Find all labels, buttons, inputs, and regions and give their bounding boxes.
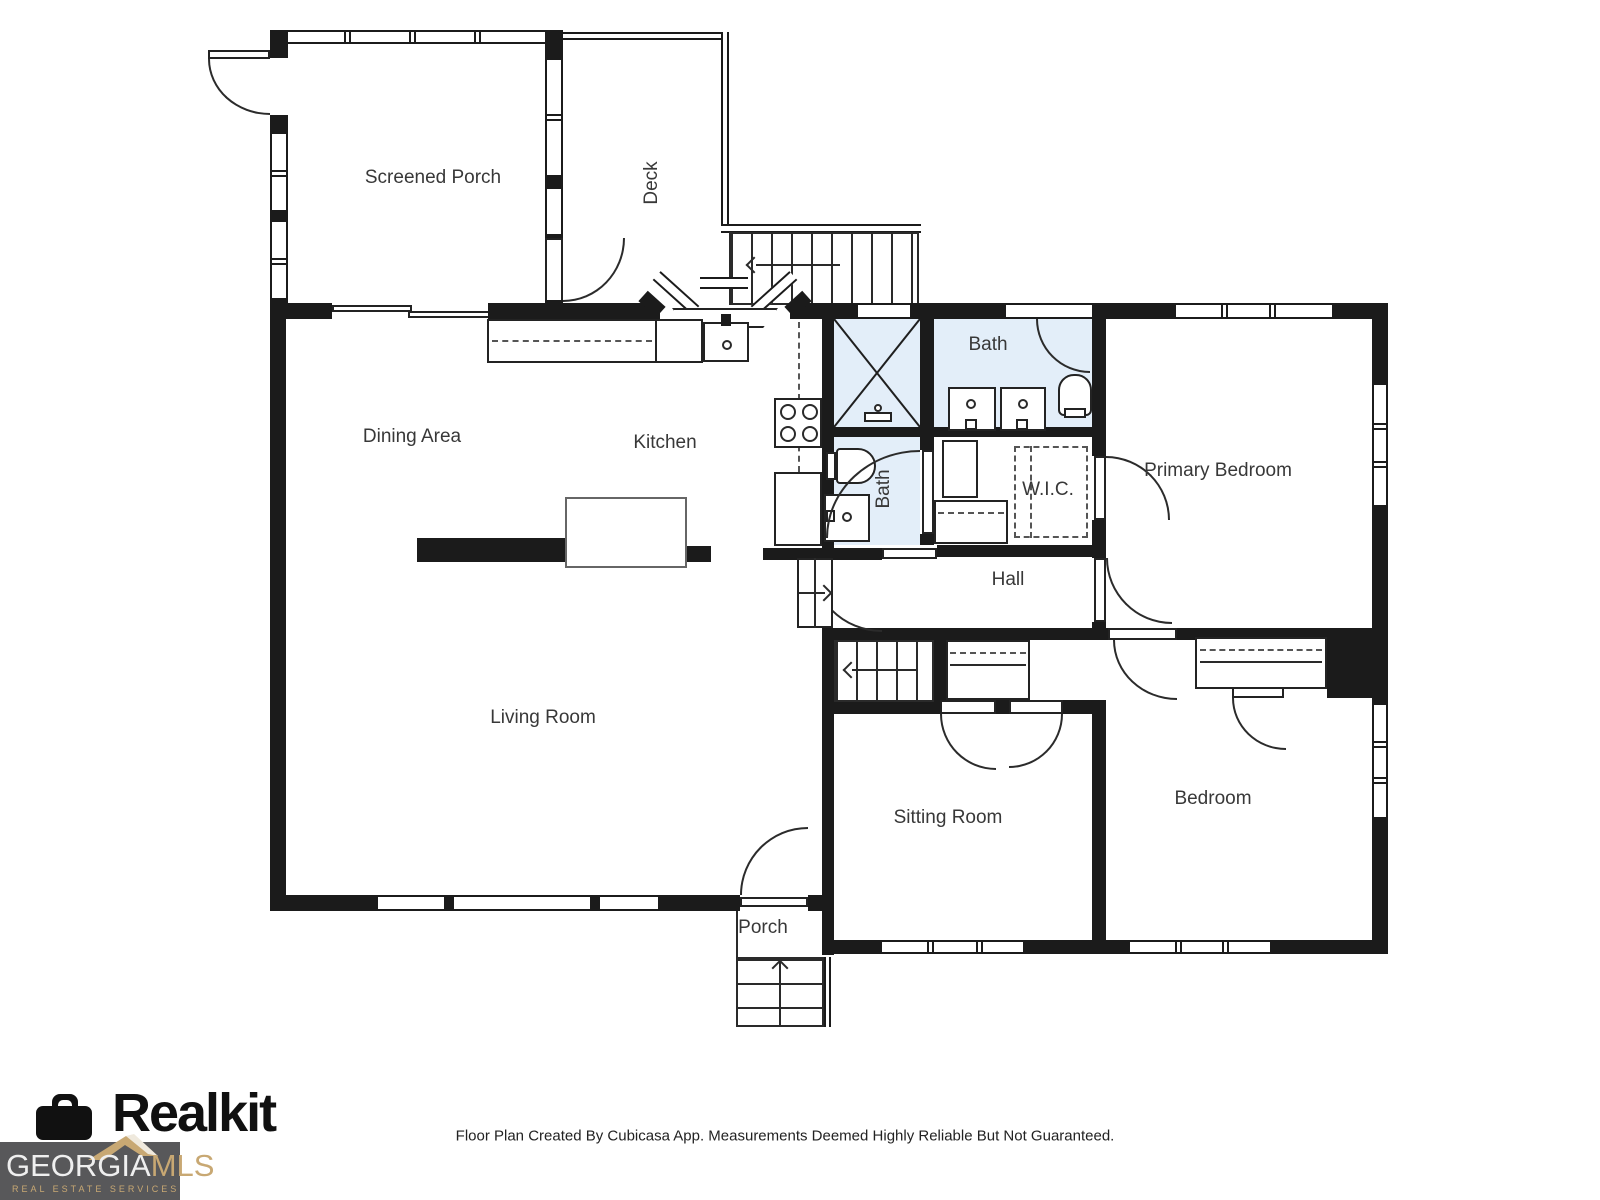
wall (1092, 700, 1106, 954)
wall (920, 534, 934, 545)
door-leaf (1094, 558, 1106, 622)
wall (920, 319, 934, 427)
wall (545, 175, 563, 189)
wall (996, 700, 1009, 714)
wall (920, 437, 934, 450)
wall (1092, 319, 1106, 456)
wall (444, 895, 454, 911)
shower-fixture (864, 412, 892, 422)
wall (270, 895, 378, 911)
wall (270, 30, 288, 58)
kitchen-cabinet-dashed (492, 340, 652, 342)
bedroom-closet (1195, 637, 1327, 689)
wall (1332, 303, 1388, 319)
wall (822, 628, 834, 955)
wall (1372, 817, 1388, 954)
wall (1023, 940, 1130, 954)
closet-rod-dashed (950, 652, 1026, 654)
wall (1327, 632, 1372, 698)
room-label-screened-porch: Screened Porch (365, 167, 501, 189)
room-label-sitting-room: Sitting Room (894, 807, 1003, 829)
kitchen-counter-dashed (798, 322, 800, 472)
door-leaf (940, 700, 996, 714)
sliding-door-panel (408, 311, 490, 318)
deck-edge-right (721, 32, 729, 232)
window (545, 189, 563, 234)
window (1130, 940, 1270, 954)
stove-burner (802, 426, 818, 442)
wall (1372, 505, 1388, 705)
window (1372, 385, 1388, 505)
closet-rod-dashed (1200, 649, 1322, 651)
shelf-dashed (938, 512, 1004, 514)
mls-tagline: REAL ESTATE SERVICES (12, 1184, 179, 1194)
kitchen-counter (655, 319, 703, 363)
deck-stairs-arrow-line (756, 264, 840, 266)
wall (658, 895, 740, 911)
door-swing-arc (1009, 714, 1063, 768)
window (600, 895, 658, 911)
sliding-door-panel (332, 305, 412, 312)
window (270, 222, 288, 298)
door-swing-arc (740, 827, 808, 895)
mls-wordmark: GEORGIAMLS (6, 1150, 214, 1181)
door-swing-arc (208, 59, 270, 115)
sink-drain (966, 399, 976, 409)
door-leaf (1009, 700, 1063, 714)
floor-plan: Screened Porch Deck Dining Area Kitchen … (0, 0, 1600, 1200)
wall (1092, 303, 1176, 319)
wall (590, 895, 600, 911)
room-label-living-room: Living Room (490, 707, 596, 729)
door-swing-arc (1106, 558, 1172, 624)
toilet-tank (1064, 408, 1086, 418)
door-leaf (922, 450, 934, 534)
stair-arrow-line (852, 669, 918, 671)
wall (1063, 700, 1092, 714)
toilet-tank (826, 452, 836, 480)
room-label-dining-area: Dining Area (363, 426, 461, 448)
door-leaf (545, 238, 563, 302)
half-wall (687, 546, 711, 562)
door-swing-arc (1232, 698, 1286, 750)
stove-burner (802, 404, 818, 420)
window (858, 303, 910, 319)
porch-steps-edge (824, 957, 831, 1027)
hall-closet (946, 640, 1030, 700)
sink-drain (1018, 399, 1028, 409)
door-leaf (1094, 456, 1106, 520)
faucet (721, 314, 731, 326)
room-label-bath-top: Bath (968, 334, 1007, 356)
linen-cabinet (934, 500, 1008, 544)
room-label-kitchen: Kitchen (633, 432, 696, 454)
wall (1372, 319, 1388, 385)
door-leaf (740, 897, 808, 907)
door-leaf (208, 50, 270, 59)
door-leaf (1232, 687, 1284, 698)
wall (937, 545, 1092, 557)
wall (488, 303, 660, 319)
georgia-mls-badge: GEORGIAMLS REAL ESTATE SERVICES (0, 1142, 180, 1200)
shower-fixture-knob (874, 404, 882, 412)
realkit-icon (36, 1106, 92, 1140)
window (882, 940, 1023, 954)
window (454, 895, 590, 911)
door-swing-arc (940, 714, 996, 770)
window (1176, 303, 1332, 319)
wall (545, 30, 563, 60)
wall (270, 319, 286, 895)
window (270, 134, 288, 210)
room-label-bath-lower: Bath (873, 469, 895, 508)
room-label-primary-bedroom: Primary Bedroom (1144, 460, 1292, 482)
room-label-bedroom: Bedroom (1174, 788, 1251, 810)
stove-burner (780, 404, 796, 420)
faucet (1016, 419, 1028, 430)
wall (1270, 940, 1388, 954)
faucet (965, 419, 977, 430)
wall (934, 640, 946, 700)
closet-shelf-line (950, 664, 1026, 666)
closet-shelf-line (1200, 661, 1322, 663)
wall (270, 115, 288, 134)
room-label-wic: W.I.C. (1022, 479, 1074, 501)
window (1372, 705, 1388, 817)
door-leaf (1108, 628, 1177, 640)
room-label-hall: Hall (992, 569, 1025, 591)
window (545, 60, 563, 175)
deck-edge-top (563, 32, 729, 40)
half-wall (417, 538, 565, 562)
window (378, 895, 444, 911)
window (1006, 303, 1092, 319)
kitchen-base-cabinet (774, 472, 822, 546)
wall (910, 303, 1006, 319)
sink-drain (722, 340, 732, 350)
disclaimer-text: Floor Plan Created By Cubicasa App. Meas… (456, 1128, 1115, 1145)
room-label-deck: Deck (641, 161, 663, 204)
wall (1092, 520, 1106, 558)
stove-burner (780, 426, 796, 442)
fireplace (565, 497, 687, 568)
window (288, 30, 545, 44)
room-label-porch: Porch (738, 917, 788, 939)
wall (822, 700, 940, 714)
door-swing-arc (1113, 640, 1177, 700)
door-leaf (882, 548, 937, 559)
wall (270, 210, 288, 222)
wall (270, 303, 332, 319)
bay-window (700, 277, 748, 289)
door-swing-arc (563, 238, 625, 302)
linen-cabinet (942, 440, 978, 498)
